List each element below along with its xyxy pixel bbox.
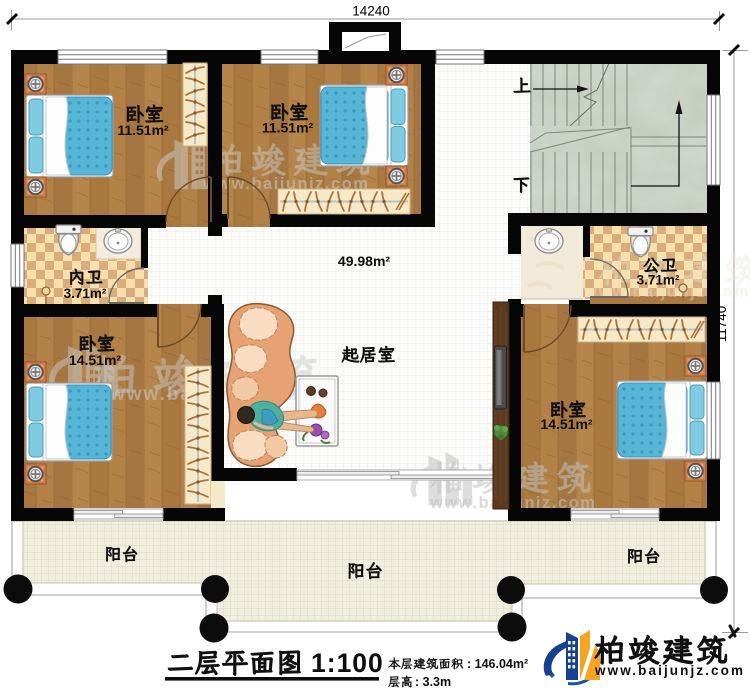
- svg-text:3.71m²: 3.71m²: [64, 286, 107, 301]
- svg-text:11.51m²: 11.51m²: [117, 122, 169, 138]
- svg-text:14.51m²: 14.51m²: [540, 416, 592, 432]
- svg-text:1:100: 1:100: [311, 648, 384, 678]
- svg-text:: 3.3m: : 3.3m: [415, 675, 451, 689]
- svg-text:49.98m²: 49.98m²: [338, 253, 390, 269]
- svg-text:: 146.04m²: : 146.04m²: [467, 657, 528, 671]
- svg-text:14240: 14240: [352, 4, 390, 19]
- svg-text:3.71m²: 3.71m²: [637, 273, 680, 288]
- svg-text:11.51m²: 11.51m²: [262, 120, 314, 136]
- svg-text:14.51m²: 14.51m²: [69, 352, 121, 368]
- svg-text:www.baijunjz.com: www.baijunjz.com: [594, 663, 745, 678]
